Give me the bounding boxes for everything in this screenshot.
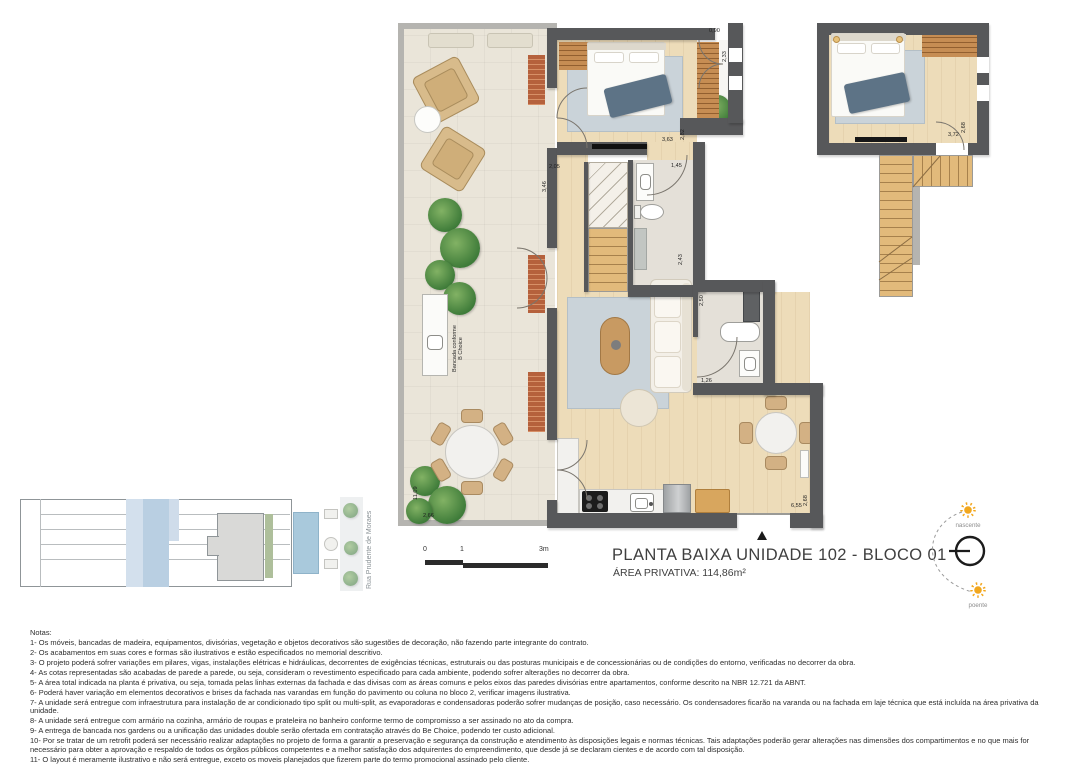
dimension-label: 6,55 [791,503,802,509]
note-item: 5- A área total indicada na planta é pri… [30,679,1060,688]
notes-list: 1- Os móveis, bancadas de madeira, equip… [30,639,1060,765]
note-item: 3- O projeto poderá sofrer variações em … [30,659,1060,668]
dimension-label: 2,33 [722,51,728,62]
dimension-label: 0,90 [709,28,720,34]
dimension-label: 1,26 [701,378,712,384]
dimension-label: 2,05 [549,164,560,170]
dimension-label: 2,68 [803,495,809,506]
note-item: 8- A unidade será entregue com armário n… [30,717,1060,726]
note-item: 9- A entrega de bancada nos gardens ou a… [30,727,1060,736]
dimension-label: 3,72 [948,132,959,138]
dimension-label: 3,63 [662,137,673,143]
notes-block: Notas: 1- Os móveis, bancadas de madeira… [30,629,1060,766]
note-item: 2- Os acabamentos em suas cores e formas… [30,649,1060,658]
dimension-label: 3,46 [542,181,548,192]
note-item: 10- Por se tratar de um retrofit poderá … [30,737,1060,754]
dimension-label: 2,68 [961,122,967,133]
note-item: 1- Os móveis, bancadas de madeira, equip… [30,639,1060,648]
dimension-label: 2,43 [678,254,684,265]
dimension-label: 11,09 [413,486,419,500]
note-item: 11- O layout é meramente ilustrativo e n… [30,756,1060,765]
dimension-label: 2,50 [699,295,705,306]
dimension-label: 1,45 [671,163,682,169]
note-item: 7- A unidade será entregue com infraestr… [30,699,1060,716]
floor-plan: Bancada conforme B Choice [0,0,1080,767]
notes-heading: Notas: [30,629,1060,638]
note-item: 6- Poderá haver variação em elementos de… [30,689,1060,698]
dimension-label: 2,82 [680,129,686,140]
note-item: 4- As cotas representadas são acabadas d… [30,669,1060,678]
dimension-label: 2,66 [423,513,434,519]
